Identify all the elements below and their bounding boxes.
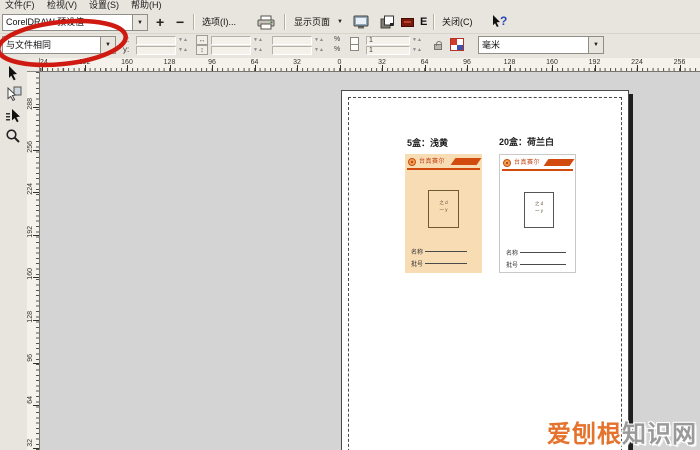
spinner-arrows-icon[interactable]: ▼▲ [312,47,324,53]
tool-strip [0,58,28,450]
y-position-value[interactable] [136,46,176,55]
separator [193,14,195,30]
field-row: 名称 [411,250,467,257]
layout-arrow-icon [5,86,22,103]
menu-settings[interactable]: 设置(S) [86,0,122,11]
percent-label: % [334,46,340,53]
spinner-arrows-icon[interactable]: ▼▲ [176,37,188,43]
v-ruler-label: 64 [27,396,34,404]
pick-arrow-icon [5,65,21,82]
copies-spinner-bottom[interactable]: 1▼▲ [366,45,428,55]
scale-y-spinner[interactable]: ▼▲ [272,45,330,55]
zoom-in-button[interactable]: + [156,13,164,31]
watermark: 爱刨根知识网 [547,414,697,449]
lock-icon[interactable] [434,44,442,50]
brand-underline [407,168,480,170]
brand-logo-icon [408,158,416,166]
page-margins [348,97,622,450]
scale-y-value[interactable] [272,46,312,55]
options-button[interactable]: 选项(I)... [202,13,236,31]
y-position-spinner[interactable]: ▼▲ [136,45,194,55]
x-position-value[interactable] [136,36,176,45]
field-row: 名称 [506,251,566,258]
v-ruler: 288256224192160128966432 [27,72,40,450]
swoosh-shape [451,158,482,165]
chevron-down-icon[interactable]: ▼ [132,15,147,30]
x-position-spinner[interactable]: ▼▲ [136,35,194,45]
monitor-preview-icon[interactable] [353,15,370,30]
width-value[interactable] [211,36,251,45]
v-ruler-label: 32 [27,439,34,447]
context-help-icon[interactable]: ? [492,14,510,30]
menu-bar: 文件(F) 检视(V) 设置(S) 帮助(H) [0,0,700,11]
v-ruler-label: 96 [27,354,34,362]
imposition-layout-tool-button[interactable] [3,85,23,104]
caption-right: 20盒：荷兰白 [499,135,554,148]
zoom-out-button[interactable]: − [176,13,184,31]
watermark-orange-text: 爱刨根 [547,421,622,448]
center-box: 之 d 一 y [428,190,459,228]
pages-icon[interactable] [379,15,395,29]
spinner-arrows-icon[interactable]: ▼▲ [251,37,263,43]
standard-toolbar: CorelDRAW 预设值 ▼ + − 选项(I)... 显示页面 ▼ E 关闭… [0,11,700,34]
height-spinner[interactable]: ▼▲ [211,45,269,55]
marks-arrow-icon [5,107,22,124]
copies-top-value[interactable]: 1 [366,36,410,45]
separator [433,14,435,30]
spinner-arrows-icon[interactable]: ▼▲ [251,47,263,53]
width-spinner[interactable]: ▼▲ [211,35,269,45]
separator [284,14,286,30]
menu-view[interactable]: 检视(V) [44,0,80,11]
spinner-arrows-icon[interactable]: ▼▲ [410,47,422,53]
printer-icon[interactable] [256,15,276,30]
watermark-gray-text: 知识网 [622,421,697,448]
brand-text: 台真赛尔 [514,160,540,167]
property-bar: 与文件相同 ▼ x: y: ▼▲ ▼▲ ↔ ↕ ▼▲ ▼▲ ▼▲ ▼▲ % % … [0,33,700,59]
x-label: x: [123,35,129,45]
package-card-white[interactable]: 台真赛尔 之 d 一 y 名称 批号 [499,154,576,273]
menu-help[interactable]: 帮助(H) [128,0,165,11]
caption-left: 5盒：浅黄 [407,136,448,149]
ruler-corner [27,58,40,72]
brand-text: 台真赛尔 [419,159,445,166]
preset-combobox[interactable]: CorelDRAW 预设值 ▼ [2,14,148,31]
enhanced-view-button[interactable]: E [420,13,427,31]
preset-combobox-value: CorelDRAW 预设值 [3,15,132,30]
copies-bottom-value[interactable]: 1 [366,46,410,55]
width-icon: ↔ [196,35,208,45]
field-row: 批号 [506,263,566,270]
height-value[interactable] [211,46,251,55]
tiled-pages-icon[interactable] [450,38,464,51]
brand-logo-icon [503,159,511,167]
brand-underline [502,169,573,171]
h-ruler: 2241921601289664320326496128160192224256 [40,58,700,72]
height-icon: ↕ [196,45,208,55]
color-preview-icon[interactable] [401,18,414,27]
field-row: 批号 [411,262,467,269]
spinner-arrows-icon[interactable]: ▼▲ [312,37,324,43]
preview-page[interactable] [341,90,629,450]
y-label: y: [123,45,129,55]
swoosh-shape [544,159,575,166]
scale-x-value[interactable] [272,36,312,45]
position-preset-value: 与文件相同 [3,37,100,53]
package-card-peach[interactable]: 台真赛尔 之 d 一 y 名称 批号 [405,154,482,273]
preview-canvas[interactable]: 5盒：浅黄 20盒：荷兰白 台真赛尔 之 d 一 y 名称 批号 台真赛尔 [40,72,700,450]
unit-combobox[interactable]: 毫米 ▼ [478,36,604,54]
scale-x-spinner[interactable]: ▼▲ [272,35,330,45]
chevron-down-icon[interactable]: ▼ [100,37,115,53]
chevron-down-icon[interactable]: ▼ [337,19,343,25]
tiling-icon [350,37,359,51]
print-preview-window: 文件(F) 检视(V) 设置(S) 帮助(H) CorelDRAW 预设值 ▼ … [0,0,700,450]
marks-placement-tool-button[interactable] [3,106,23,125]
percent-label: % [334,36,340,43]
spinner-arrows-icon[interactable]: ▼▲ [176,47,188,53]
chevron-down-icon[interactable]: ▼ [588,37,603,53]
close-button[interactable]: 关闭(C) [442,13,473,31]
copies-spinner-top[interactable]: 1▼▲ [366,35,428,45]
zoom-tool-button[interactable] [3,126,23,145]
spinner-arrows-icon[interactable]: ▼▲ [410,37,422,43]
center-box: 之 d 一 y [524,192,554,228]
position-preset-combobox[interactable]: 与文件相同 ▼ [2,36,116,54]
pick-tool-button[interactable] [3,64,23,83]
magnifier-icon [5,128,21,144]
menu-file[interactable]: 文件(F) [2,0,38,11]
show-page-combobox[interactable]: 显示页面 [294,13,330,31]
unit-value: 毫米 [479,37,588,53]
